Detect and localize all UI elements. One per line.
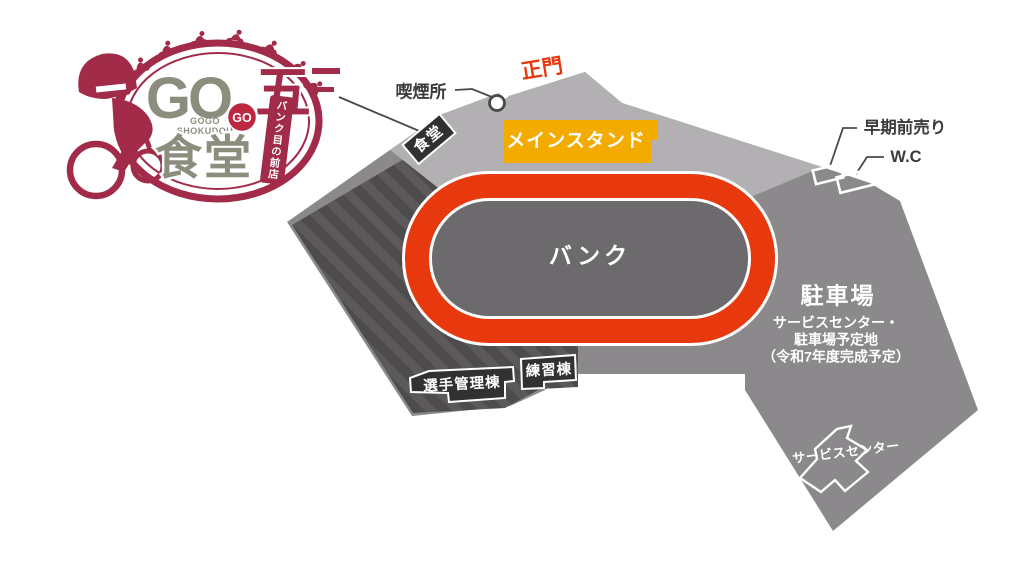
main-stand-label: メインスタンド (506, 132, 646, 151)
logo-shokudo-text: 食堂 (155, 131, 253, 184)
early-ticket-label: 早期前売り (864, 120, 947, 137)
rear-wheel-icon (70, 144, 122, 196)
practice-building-label: 練習棟 (525, 363, 572, 380)
parking-note-line1: サービスセンター・ (762, 315, 910, 332)
helmet-shape (78, 53, 137, 99)
parking-notes: サービスセンター・ 駐車場予定地 （令和7年度完成予定） (762, 315, 910, 366)
bank-label: バンク (549, 245, 631, 268)
page: GO 五 GO GOGO SHOKUDOU 食堂 バンク目の前店 喫煙所 正門 … (0, 0, 1024, 576)
speed-line (312, 68, 340, 74)
parking-note-line3: （令和7年度完成予定） (762, 349, 910, 366)
wc-label: W.C (890, 149, 921, 166)
logo: GO 五 GO GOGO SHOKUDOU 食堂 (70, 29, 340, 199)
speed-line (308, 87, 334, 92)
logo-to-cafeteria-line (339, 97, 424, 133)
parking-label: 駐車場 (801, 285, 876, 308)
early-ticket-leader-line (830, 128, 857, 166)
logo-subtitle-line1: GOGO (190, 116, 220, 126)
smoking-leader-line (455, 89, 492, 97)
go-badge-text: GO (232, 111, 252, 125)
parking-note-line2: 駐車場予定地 (762, 332, 910, 349)
smoking-area-label: 喫煙所 (396, 84, 447, 101)
smoking-spot-marker (490, 96, 505, 111)
